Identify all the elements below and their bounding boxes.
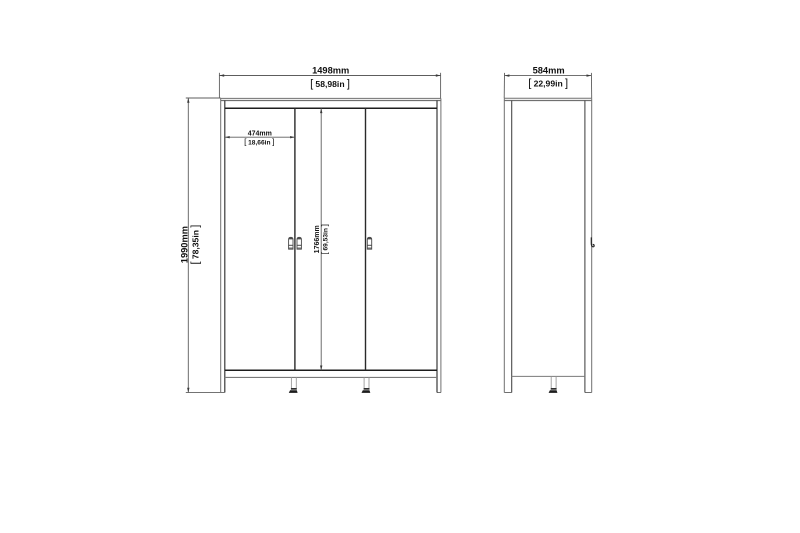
svg-text:584mm: 584mm xyxy=(533,65,565,75)
svg-text:1498mm: 1498mm xyxy=(312,65,349,75)
svg-text:1766mm: 1766mm xyxy=(314,225,321,253)
svg-text:[ 78,35in ]: [ 78,35in ] xyxy=(190,225,202,265)
svg-text:1990mm: 1990mm xyxy=(179,226,189,263)
svg-text:[ 58,98in ]: [ 58,98in ] xyxy=(310,78,350,90)
svg-text:[ 22,99in ]: [ 22,99in ] xyxy=(528,77,568,89)
svg-text:474mm: 474mm xyxy=(248,131,272,138)
